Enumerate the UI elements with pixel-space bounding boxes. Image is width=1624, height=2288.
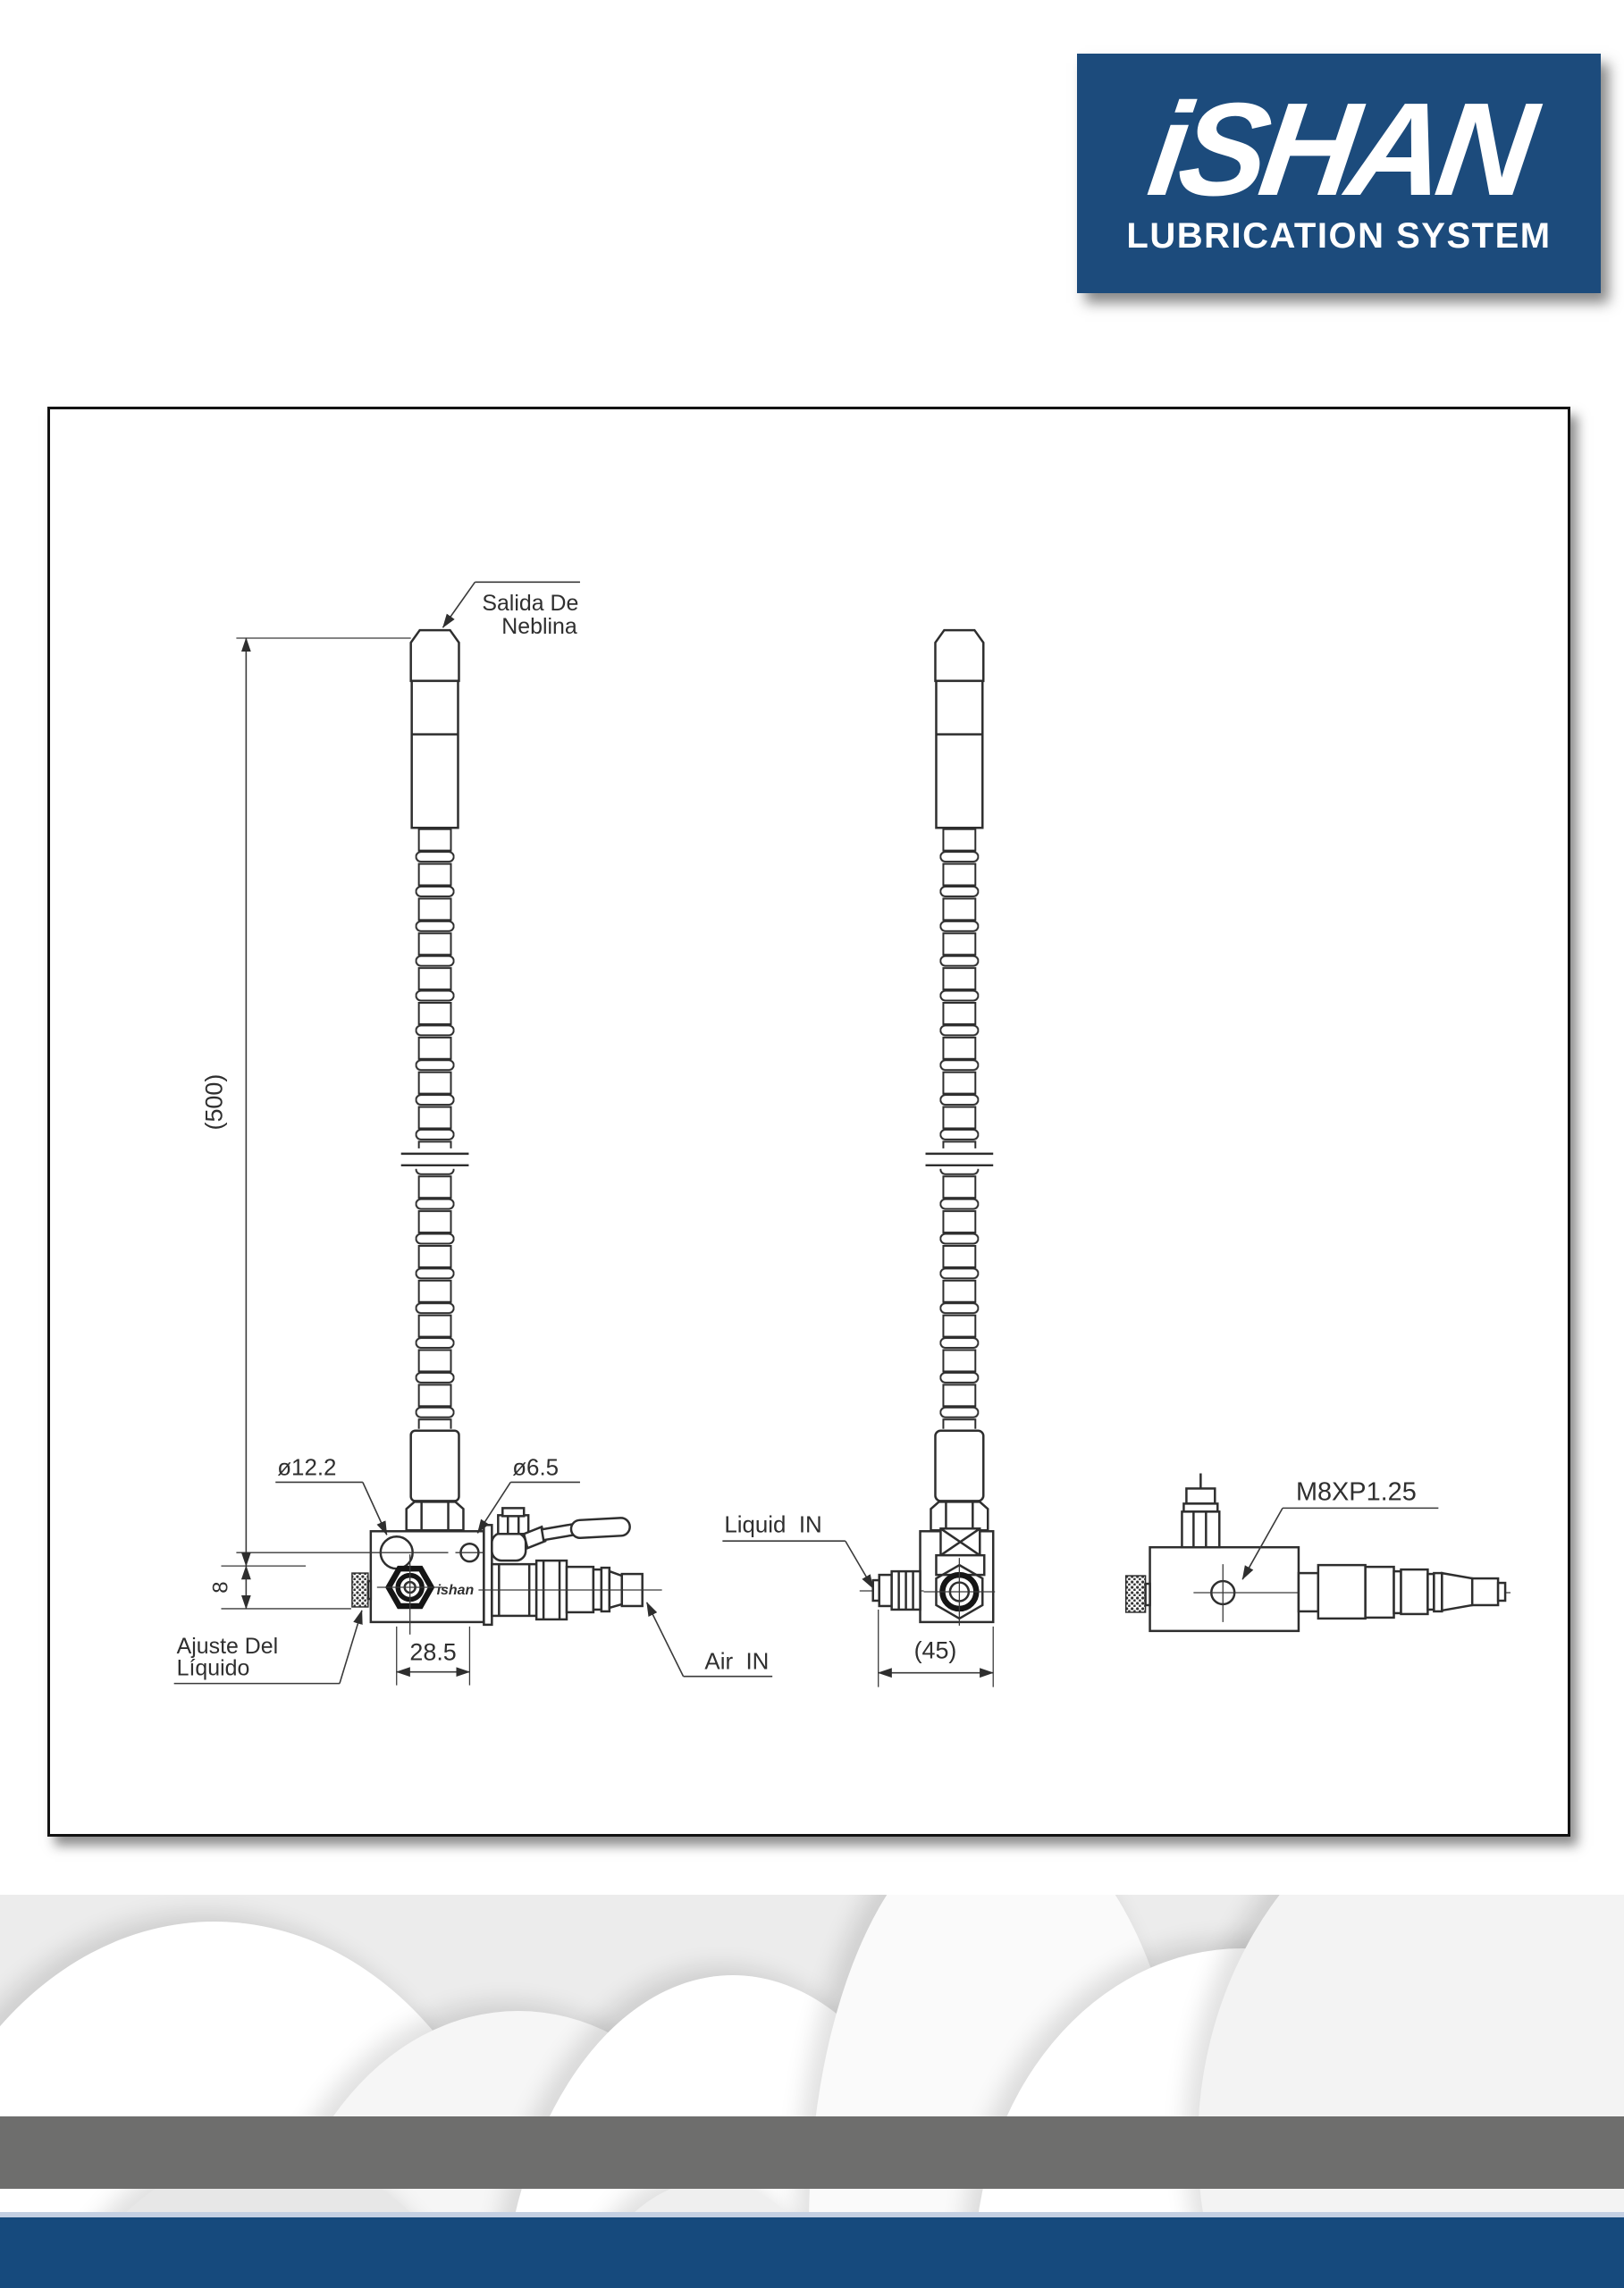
page: { "logo": { "brand": "iSHAN", "tagline":… — [0, 0, 1624, 2288]
side-view: Liquid IN (45) — [722, 630, 995, 1687]
front-view: ishan — [174, 582, 772, 1685]
dim-8-label: 8 — [208, 1581, 232, 1593]
label-ajuste-2: Líquido — [177, 1656, 250, 1681]
leader-ajuste: Ajuste Del Líquido — [174, 1611, 362, 1684]
brand-logo: iSHAN LUBRICATION SYSTEM — [1077, 54, 1601, 293]
leader-salida: Salida De Neblina — [443, 582, 580, 639]
label-dia-12-2: ø12.2 — [277, 1456, 336, 1481]
block-brand-mark: ishan — [437, 1583, 475, 1598]
label-air-in: Air IN — [704, 1650, 769, 1675]
footer-gray-bar — [0, 2116, 1624, 2189]
liquid-adjust-knob — [352, 1573, 368, 1607]
nozzle-tip — [411, 630, 459, 681]
flex-hose-side-upper — [939, 828, 979, 1148]
label-liquid-in: Liquid IN — [724, 1512, 821, 1537]
label-thread: M8XP1.25 — [1296, 1477, 1417, 1506]
flex-hose-lower — [416, 1169, 455, 1429]
dim-500: (500) — [200, 638, 410, 1566]
valve-lever-handle — [570, 1518, 630, 1538]
dim-8: 8 — [208, 1566, 350, 1609]
manifold-block-end — [1150, 1547, 1299, 1631]
liquid-adjust-knob-end — [1126, 1576, 1146, 1612]
technical-drawing: ishan — [50, 409, 1568, 1834]
label-dia-6-5: ø6.5 — [512, 1456, 559, 1481]
leader-liquid-in: Liquid IN — [722, 1512, 872, 1588]
dim-28-5: 28.5 — [397, 1627, 470, 1686]
end-view: M8XP1.25 — [1126, 1474, 1510, 1631]
flex-hose-side-lower — [939, 1169, 979, 1429]
brand-logo-text: iSHAN — [1143, 97, 1534, 204]
footer-navy-bar — [0, 2212, 1624, 2288]
liquid-inlet-fitting — [860, 1571, 924, 1610]
top-fitting-hex — [1182, 1511, 1219, 1547]
label-salida-2: Neblina — [501, 614, 577, 639]
leader-dia-12-2: ø12.2 — [275, 1456, 387, 1535]
leader-air-in: Air IN — [647, 1602, 772, 1677]
flex-hose-upper — [416, 828, 455, 1148]
label-salida-1: Salida De — [482, 591, 578, 616]
dim-28-5-label: 28.5 — [409, 1639, 456, 1666]
air-quick-connect-end — [1299, 1565, 1505, 1619]
dim-500-label: (500) — [200, 1074, 227, 1131]
drawing-sheet: ishan — [47, 407, 1570, 1837]
dim-45-label: (45) — [914, 1637, 957, 1664]
ball-valve — [478, 1508, 661, 1625]
nozzle-tip-side — [935, 630, 983, 681]
label-ajuste-1: Ajuste Del — [177, 1634, 278, 1659]
